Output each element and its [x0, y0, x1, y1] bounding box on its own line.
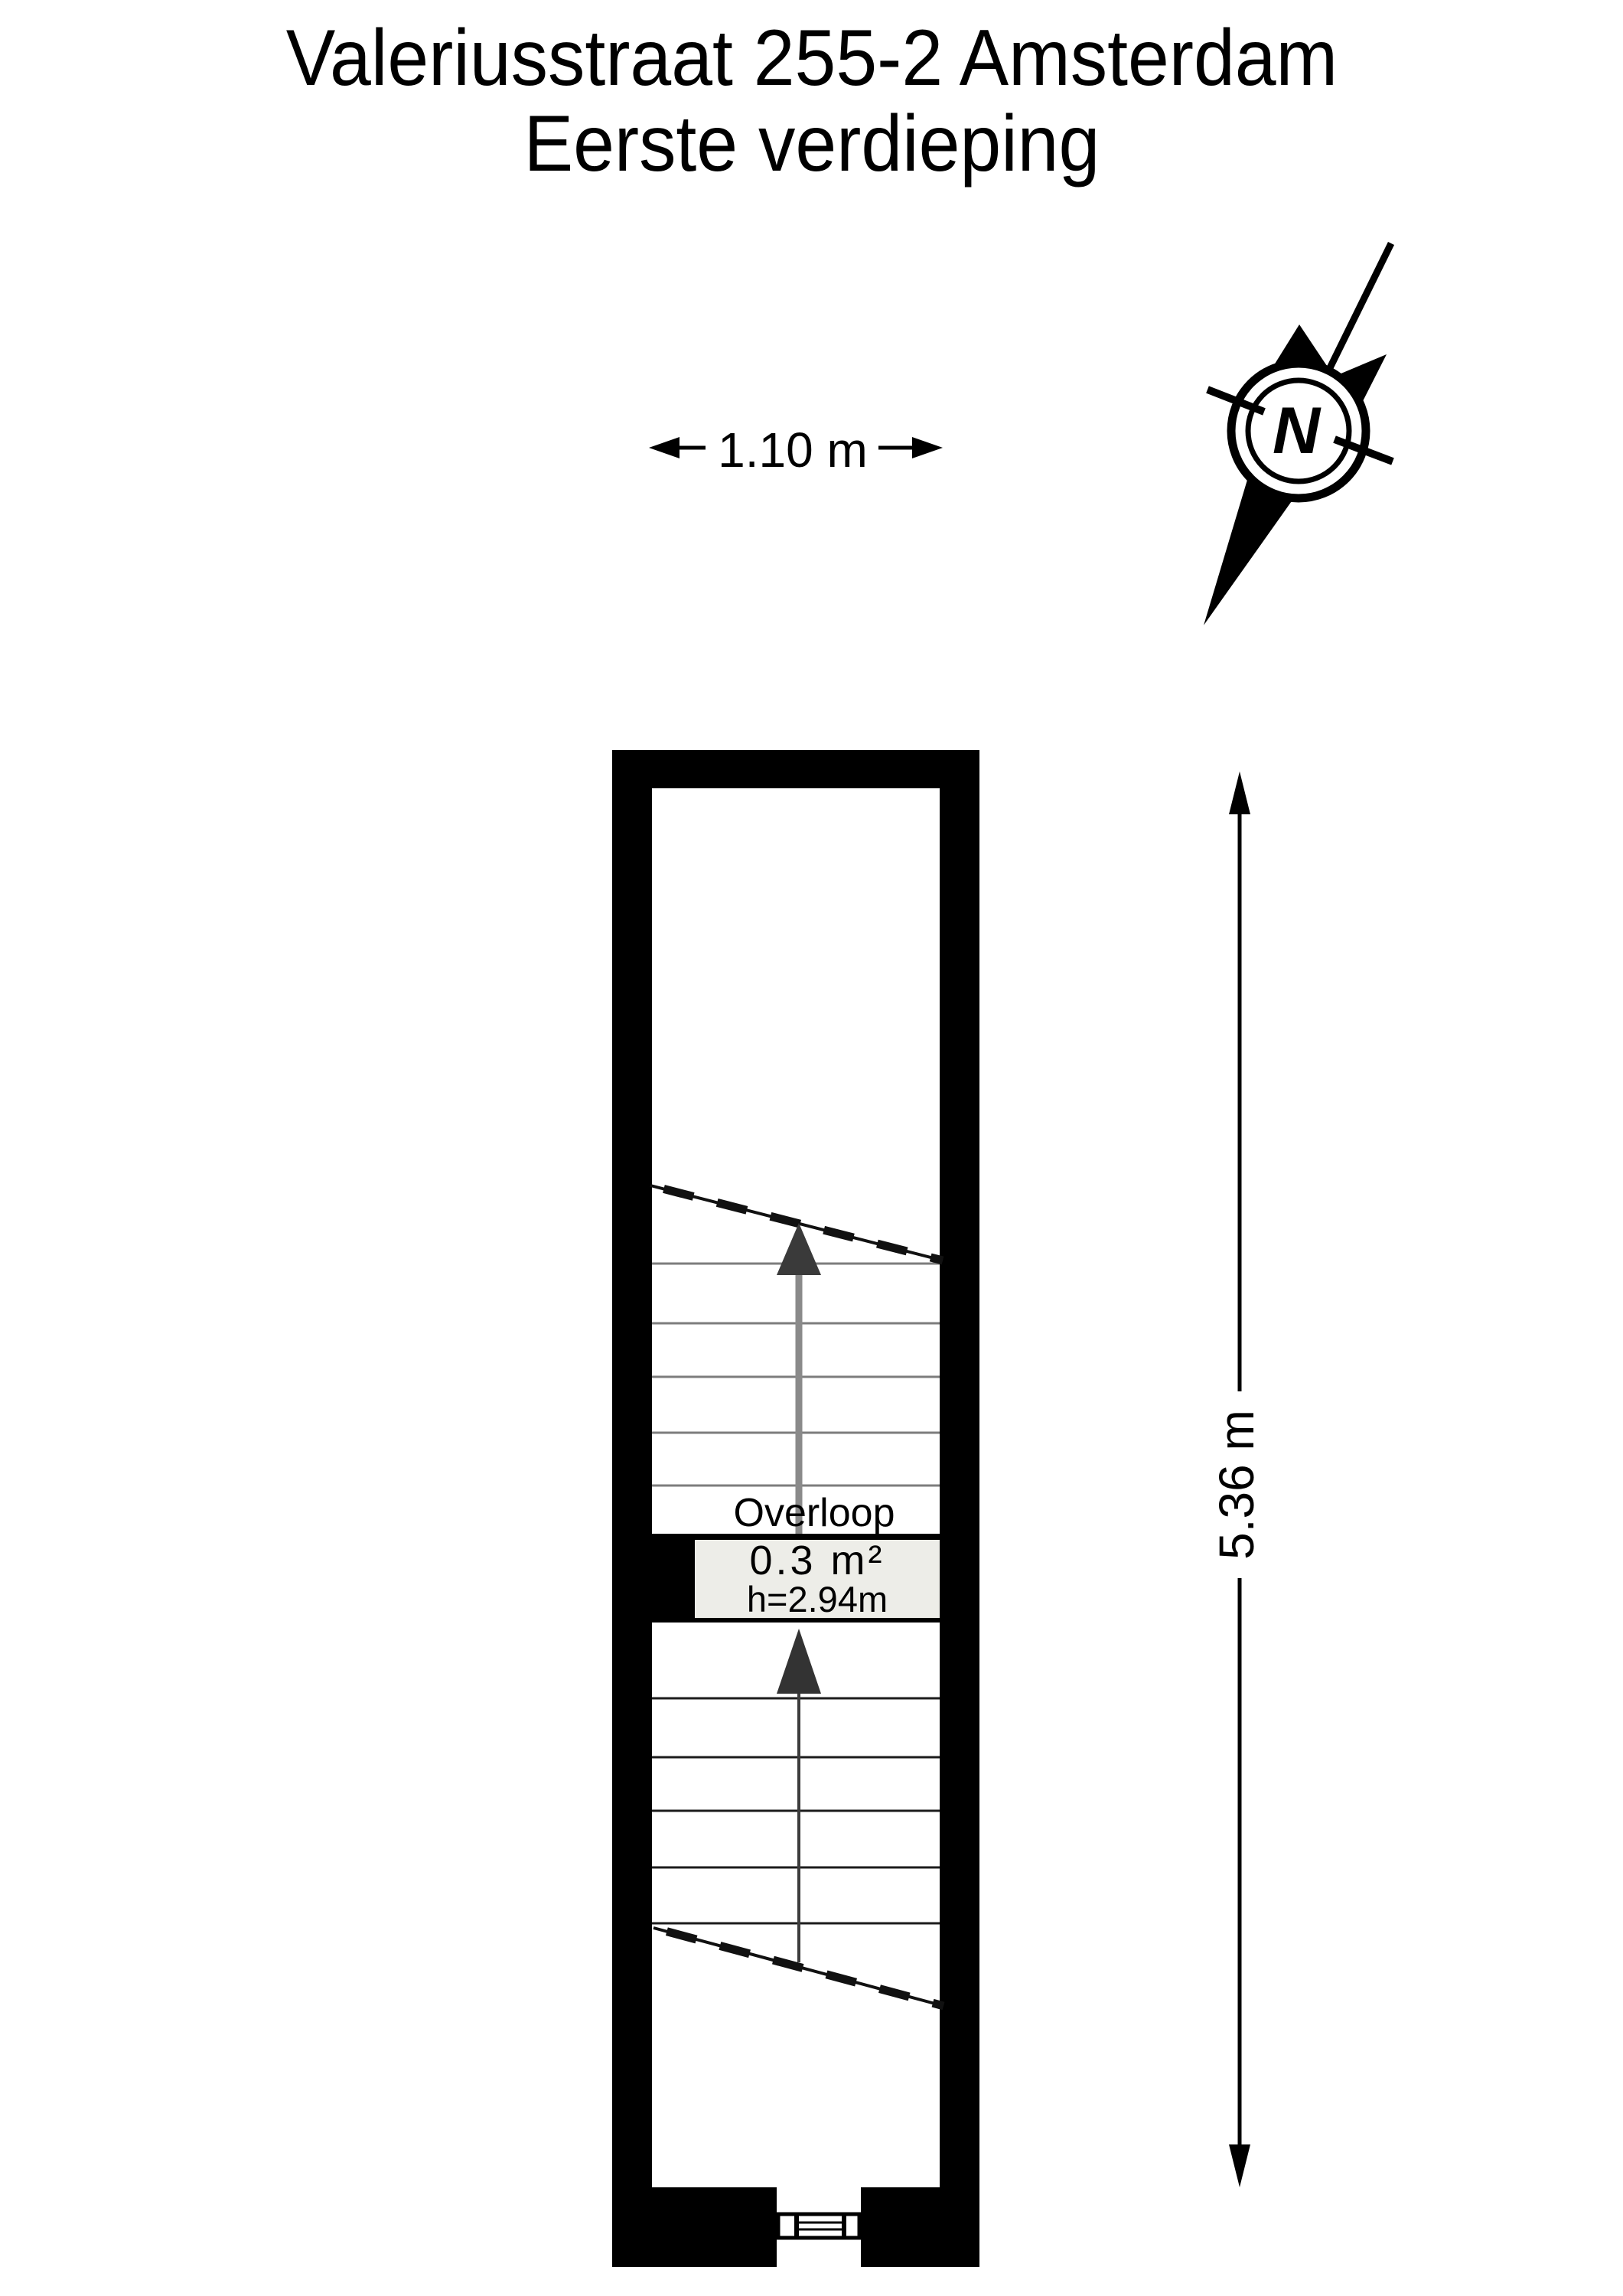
- room-name-label: Overloop: [734, 1493, 895, 1533]
- page-title-line1: Valeriusstraat 255-2 Amsterdam: [285, 15, 1337, 101]
- arrow-right-icon: [912, 437, 943, 458]
- window-symbol: [778, 2214, 859, 2238]
- window-frame: [778, 2214, 859, 2238]
- staircase-upper-flight: [650, 1186, 943, 1534]
- arrow-up-icon: [1229, 771, 1250, 814]
- width-dimension-label: 1.10 m: [718, 426, 868, 475]
- walk-line-arrowhead-icon: [777, 1223, 821, 1275]
- arrow-left-icon: [649, 437, 680, 458]
- staircase-lower-flight: [652, 1629, 943, 2006]
- wall-top: [612, 750, 979, 788]
- room-info-box: 0.3 m² h=2.94m: [695, 1540, 940, 1618]
- room-height-label: h=2.94m: [747, 1581, 888, 1618]
- floor-plan-drawing: N: [0, 0, 1623, 2296]
- compass-north-label: N: [1273, 394, 1322, 468]
- height-dimension-label: 5.36 m: [1212, 1410, 1261, 1560]
- floorplan-page: N Valeriusstraat 255-2 Amsterdam Eerste …: [0, 0, 1623, 2296]
- compass-rose-icon: N: [1204, 243, 1393, 625]
- wall-left: [612, 750, 652, 2267]
- page-title: Valeriusstraat 255-2 Amsterdam Eerste ve…: [0, 15, 1623, 187]
- page-title-line2: Eerste verdieping: [285, 101, 1337, 187]
- wall-right: [940, 750, 979, 2267]
- walk-line-arrowhead-icon: [777, 1629, 821, 1694]
- arrow-down-icon: [1229, 2144, 1250, 2187]
- room-area-label: 0.3 m²: [749, 1540, 885, 1581]
